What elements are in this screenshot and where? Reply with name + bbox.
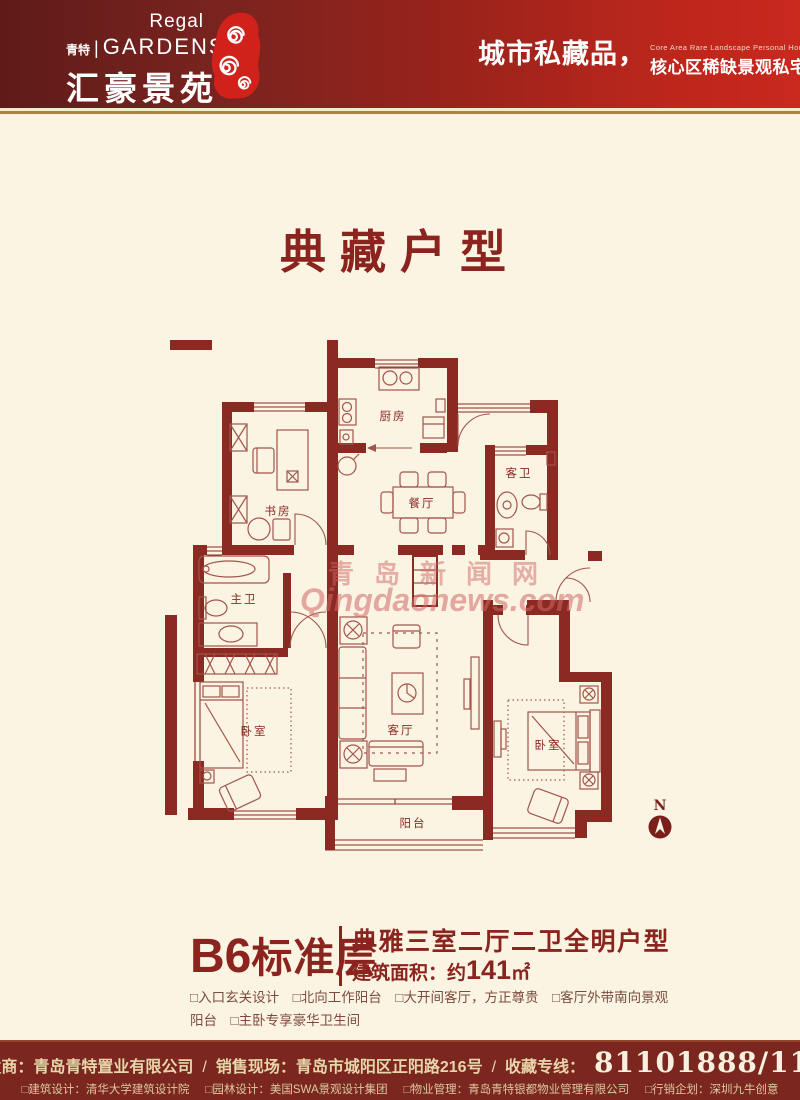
- header-tagline: 城市私藏品， Core Area Rare Landscape Personal…: [478, 38, 800, 78]
- room-label-master-bath: 主卫: [231, 593, 258, 606]
- room-label-balcony: 阳台: [400, 816, 427, 830]
- unit-area-unit: ㎡: [511, 963, 530, 984]
- cloud-seal-icon: [206, 10, 264, 102]
- room-label-guest-bath: 客卫: [506, 466, 533, 480]
- unit-name-latin: B6: [190, 930, 251, 983]
- footer-credits-line: □建筑设计：清华大学建筑设计院 □园林设计：美国SWA景观设计集团 □物业管理：…: [21, 1081, 778, 1097]
- feature-line-2: 阳台 □主卧专享豪华卫生间: [190, 1009, 650, 1032]
- room-label-bedroom-left: 卧室: [241, 724, 268, 738]
- header-separator-gold: [0, 111, 800, 114]
- footer-slash-2: /: [492, 1059, 496, 1077]
- unit-area-prefix: 建筑面积：约: [352, 963, 466, 984]
- footer-hotline-label: 收藏专线：: [505, 1053, 585, 1077]
- logo-cn-tag: 青特: [66, 41, 90, 58]
- room-label-study: 书房: [265, 505, 292, 518]
- footer-slash-1: /: [202, 1059, 206, 1077]
- north-arrow: N: [638, 798, 682, 845]
- unit-area-number: 141: [466, 955, 511, 985]
- unit-name: B6标准层: [190, 924, 377, 984]
- footer-developer: 开发商：青岛青特置业有限公司: [0, 1053, 193, 1077]
- unit-headline: 典雅三室二厅二卫全明户型: [352, 922, 670, 958]
- logo-regal-text: Regal: [66, 11, 206, 33]
- credit-marketing: □行销企划：深圳九牛创意: [645, 1081, 778, 1097]
- north-arrow-icon: [647, 814, 673, 840]
- poster-page: Regal 青特 | GARDENS 汇豪景苑 城市私藏品， Core Area…: [0, 0, 800, 1100]
- credit-property: □物业管理：青岛青特银都物业管理有限公司: [404, 1081, 629, 1097]
- tagline-english: Core Area Rare Landscape Personal House: [650, 43, 800, 52]
- room-label-living: 客厅: [388, 723, 415, 737]
- north-label: N: [638, 798, 682, 814]
- footer-sales: 销售现场：青岛市城阳区正阳路216号: [216, 1053, 483, 1077]
- room-label-dining: 餐厅: [409, 496, 436, 510]
- brand-logo: Regal 青特 | GARDENS 汇豪景苑: [66, 11, 206, 110]
- unit-area: 建筑面积：约141㎡: [352, 955, 530, 986]
- credit-landscape: □园林设计：美国SWA景观设计集团: [205, 1081, 387, 1097]
- footer-hotline-number: 81101888/111: [594, 1046, 800, 1079]
- watermark-english: Qingdaonews.com: [300, 582, 584, 619]
- credit-architecture: □建筑设计：清华大学建筑设计院: [21, 1081, 189, 1097]
- unit-features: □入口玄关设计 □北向工作阳台 □大开间客厅，方正尊贵 □客厅外带南向景观 阳台…: [190, 986, 650, 1032]
- header-banner: Regal 青特 | GARDENS 汇豪景苑 城市私藏品， Core Area…: [0, 0, 800, 108]
- tagline-sub: 核心区稀缺景观私宅: [650, 53, 800, 78]
- logo-pipe: |: [94, 38, 99, 59]
- logo-cn-name: 汇豪景苑: [66, 62, 206, 110]
- unit-divider-line: [339, 926, 342, 986]
- footer-banner: 开发商：青岛青特置业有限公司 / 销售现场：青岛市城阳区正阳路216号 / 收藏…: [0, 1040, 800, 1100]
- logo-gardens-line: 青特 | GARDENS: [66, 34, 206, 60]
- footer-contact-line: 开发商：青岛青特置业有限公司 / 销售现场：青岛市城阳区正阳路216号 / 收藏…: [0, 1046, 800, 1079]
- room-label-bedroom-right: 卧室: [535, 738, 562, 752]
- tagline-main: 城市私藏品，: [478, 38, 646, 72]
- feature-line-1: □入口玄关设计 □北向工作阳台 □大开间客厅，方正尊贵 □客厅外带南向景观: [190, 986, 650, 1009]
- room-label-kitchen: 厨房: [380, 410, 407, 423]
- page-title: 典藏户型: [0, 216, 800, 282]
